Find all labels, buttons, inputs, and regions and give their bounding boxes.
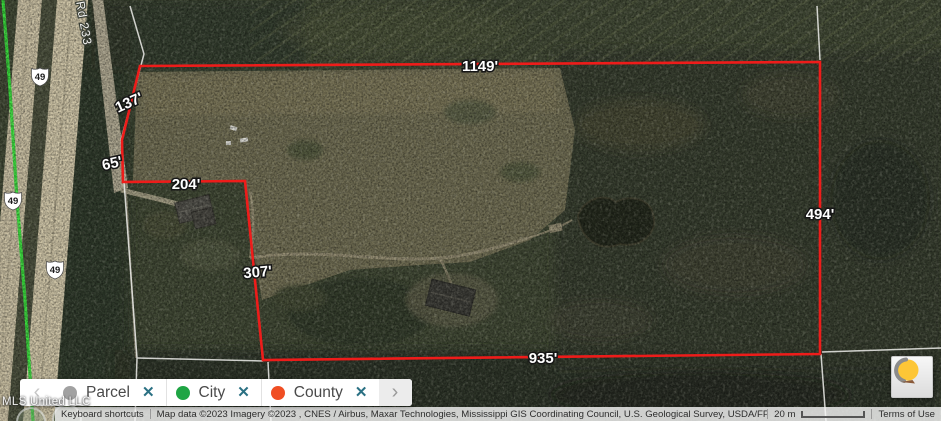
attribution-bar: Keyboard shortcuts Map data ©2023 Imager… xyxy=(55,407,941,421)
map-scale: 20 m xyxy=(768,407,871,421)
layer-chip-label: City xyxy=(199,384,226,402)
measurement-north-inner: 204' xyxy=(172,176,201,193)
svg-text:49: 49 xyxy=(35,72,46,83)
map-data-credits: Map data ©2023 Imagery ©2023 , CNES / Ai… xyxy=(151,409,767,420)
pegman-button[interactable] xyxy=(891,356,933,398)
layers-next-button[interactable]: › xyxy=(379,379,412,406)
satellite-map[interactable]: 1149' 137' 65' 204' 307' 494' 935' Rd 23… xyxy=(0,0,941,421)
terms-of-use-link[interactable]: Terms of Use xyxy=(872,407,941,421)
scale-label: 20 m xyxy=(774,409,795,420)
remove-city-layer-icon[interactable]: ✕ xyxy=(237,385,250,400)
svg-text:49: 49 xyxy=(8,196,19,207)
measurement-west-inner: 307' xyxy=(243,263,273,282)
remove-parcel-layer-icon[interactable]: ✕ xyxy=(142,385,155,400)
pegman-icon xyxy=(892,357,920,387)
layer-chip-label: County xyxy=(294,384,343,402)
measurement-east: 494' xyxy=(806,206,835,223)
remove-county-layer-icon[interactable]: ✕ xyxy=(355,385,368,400)
scale-bar-icon xyxy=(801,411,865,418)
svg-text:49: 49 xyxy=(50,265,61,276)
layer-chip-county: County ✕ xyxy=(262,379,379,406)
layer-chip-city: City ✕ xyxy=(167,379,261,406)
map-viewport[interactable]: 1149' 137' 65' 204' 307' 494' 935' Rd 23… xyxy=(0,0,941,421)
city-layer-dot-icon xyxy=(176,386,190,400)
county-layer-dot-icon xyxy=(271,386,285,400)
measurement-north: 1149' xyxy=(462,58,498,75)
measurement-south: 935' xyxy=(529,350,558,367)
watermark: MLS United LLC xyxy=(2,396,91,408)
keyboard-shortcuts-link[interactable]: Keyboard shortcuts xyxy=(55,407,150,421)
layer-chip-label: Parcel xyxy=(86,384,130,402)
